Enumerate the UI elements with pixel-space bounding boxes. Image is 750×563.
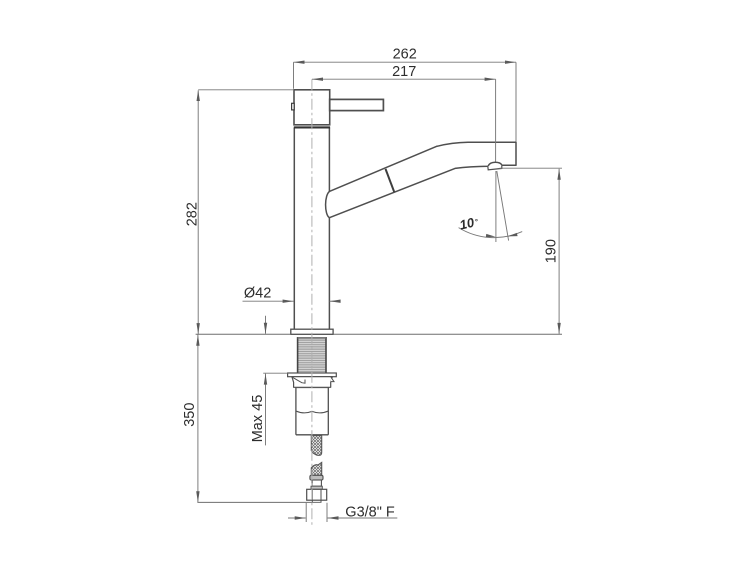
svg-text:Ø42: Ø42 [244,285,271,301]
svg-text:190: 190 [543,239,559,263]
svg-text:282: 282 [185,202,201,226]
svg-text:10°: 10° [458,214,480,233]
svg-text:G3/8" F: G3/8" F [345,505,395,521]
svg-text:Max 45: Max 45 [250,395,266,443]
svg-text:217: 217 [392,64,416,80]
svg-text:350: 350 [182,403,198,427]
svg-text:262: 262 [393,47,417,63]
